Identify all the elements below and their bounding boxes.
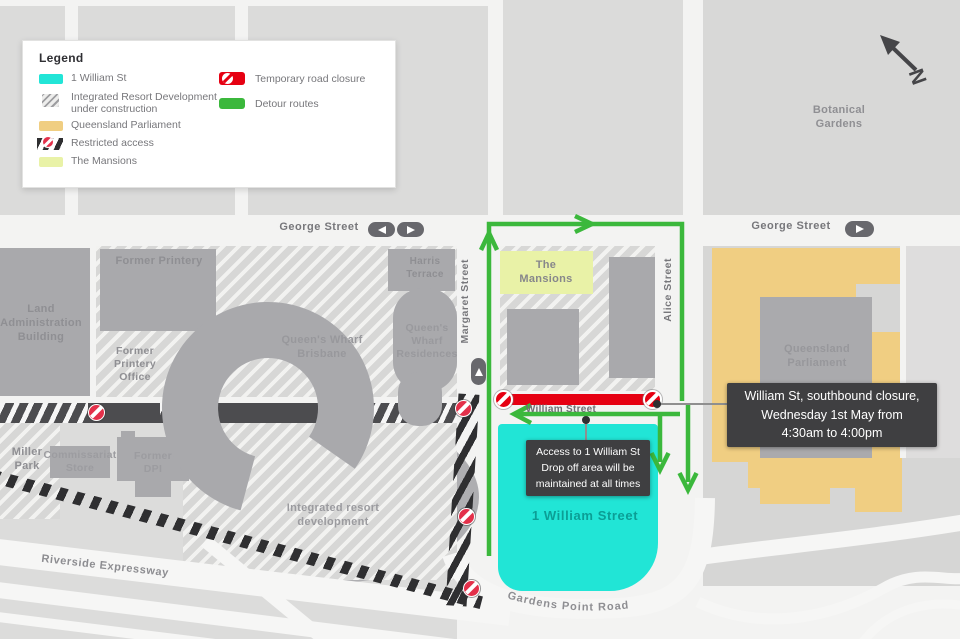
detour-route-main	[489, 224, 682, 556]
legend-swatch-construction	[42, 94, 59, 107]
legend-label: 1 William St	[71, 72, 126, 84]
commissariat-store-label: CommissariatStore	[43, 449, 116, 475]
queens-wharf-brisbane-label: Queen's WharfBrisbane	[281, 334, 362, 362]
legend-label: Detour routes	[255, 98, 319, 110]
land-admin-label: LandAdministrationBuilding	[0, 303, 82, 344]
north-label: N	[904, 66, 931, 88]
access-callout-line: maintained at all times	[526, 476, 650, 492]
legend-swatch-mansions	[39, 157, 63, 167]
closure-callout-line: 4:30am to 4:00pm	[727, 424, 937, 443]
former-dpi-label: FormerDPI	[134, 450, 172, 476]
margaret-street-label: Margaret Street	[459, 259, 471, 344]
legend-title: Legend	[39, 51, 83, 65]
access-callout: Access to 1 William St Drop off area wil…	[526, 440, 650, 496]
no-entry-icon	[222, 73, 233, 84]
william-street-label: William Street	[526, 404, 596, 417]
harris-terrace-label: HarrisTerrace	[406, 256, 444, 281]
closure-callout: William St, southbound closure, Wednesda…	[727, 383, 937, 447]
road-closure-map: Gardens Point Road William St, southboun…	[0, 0, 960, 639]
one-way-right-icon	[845, 221, 874, 237]
legend-swatch-detour	[219, 98, 245, 109]
legend-swatch-parliament	[39, 121, 63, 131]
legend-label: Restricted access	[71, 137, 154, 149]
no-entry-icon	[42, 136, 54, 148]
access-callout-line: Drop off area will be	[526, 460, 650, 476]
former-printery-label: Former Printery	[115, 255, 202, 269]
access-callout-line: Access to 1 William St	[526, 444, 650, 460]
north-arrow: N	[858, 22, 938, 92]
callout-leader-dot	[653, 400, 661, 408]
alice-street-label: Alice Street	[662, 258, 674, 322]
miller-park-label: MillerPark	[12, 446, 43, 474]
north-arrow-line	[892, 47, 916, 70]
george-street-label: George Street	[751, 220, 830, 234]
closure-callout-line: Wednesday 1st May from	[727, 406, 937, 425]
callout-leader-line	[657, 403, 727, 405]
legend-label: The Mansions	[71, 155, 137, 167]
legend-label: Queensland Parliament	[71, 119, 181, 131]
printery-office-label: FormerPrinteryOffice	[114, 345, 156, 384]
one-way-left-icon	[368, 222, 395, 237]
legend-label: Temporary road closure	[255, 73, 365, 85]
legend-label: Integrated Resort Development under cons…	[71, 91, 217, 115]
callout-leader-dot	[582, 416, 590, 424]
one-way-right-icon	[397, 222, 424, 237]
one-way-up-icon	[471, 358, 486, 385]
legend-swatch-1-william	[39, 74, 63, 84]
legend-panel: Legend 1 William St Integrated Resort De…	[22, 40, 396, 188]
queens-wharf-residences-label: Queen'sWharfResidences	[396, 322, 457, 361]
george-street-label: George Street	[279, 221, 358, 235]
one-william-street-label: 1 William Street	[532, 508, 638, 524]
integrated-resort-label: Integrated resortdevelopment	[287, 502, 380, 530]
closure-callout-line: William St, southbound closure,	[727, 387, 937, 406]
the-mansions-label: TheMansions	[519, 259, 572, 287]
botanical-gardens-label: BotanicalGardens	[813, 104, 865, 132]
queensland-parliament-label: QueenslandParliament	[784, 343, 850, 371]
